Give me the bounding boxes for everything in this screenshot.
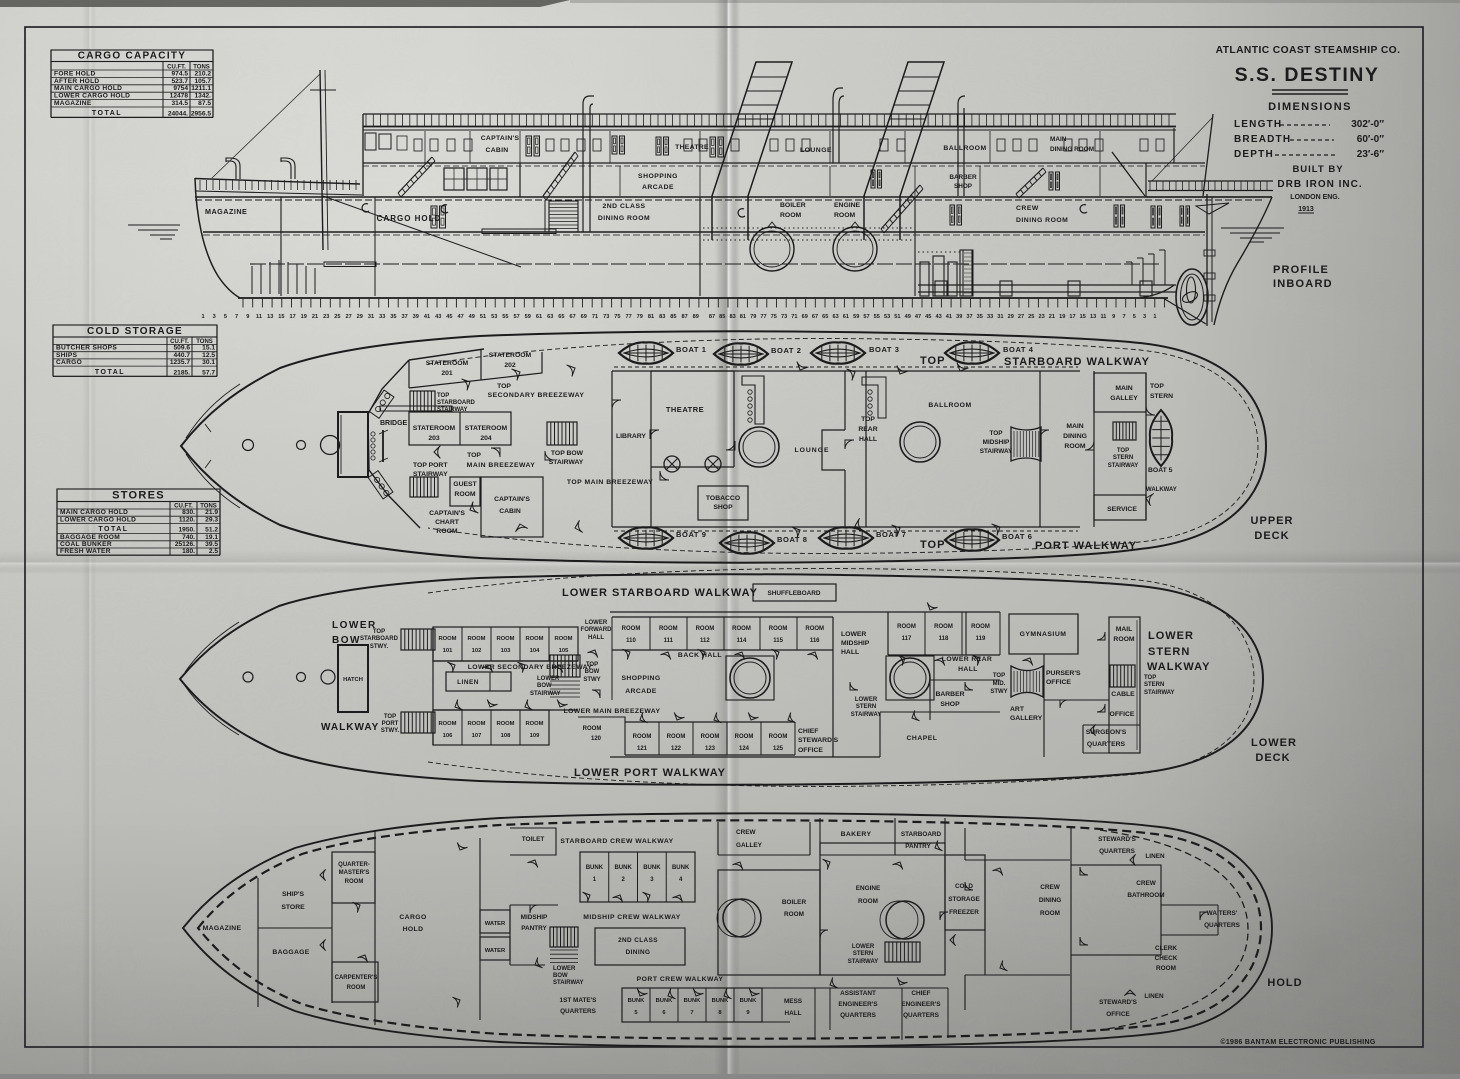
svg-text:1235.7: 1235.7	[170, 359, 191, 366]
svg-text:DINING: DINING	[1063, 433, 1087, 440]
svg-text:15: 15	[278, 314, 284, 320]
svg-text:OFFICE: OFFICE	[1046, 679, 1071, 686]
svg-text:2.5: 2.5	[209, 548, 218, 555]
svg-text:121: 121	[637, 746, 648, 752]
svg-text:LOWER: LOWER	[1251, 737, 1297, 749]
svg-text:43: 43	[435, 314, 441, 320]
svg-text:75: 75	[771, 314, 777, 320]
svg-text:TOP: TOP	[384, 714, 396, 720]
svg-text:89: 89	[693, 314, 699, 320]
svg-text:LOWER: LOWER	[553, 966, 576, 972]
svg-text:ROOM: ROOM	[496, 721, 514, 727]
svg-text:LOWER: LOWER	[855, 697, 878, 703]
svg-text:87: 87	[709, 314, 715, 320]
svg-text:ROOM: ROOM	[667, 734, 686, 740]
svg-text:STAIRWAY: STAIRWAY	[413, 471, 448, 478]
svg-text:102: 102	[472, 648, 482, 654]
svg-text:MAIN CARGO HOLD: MAIN CARGO HOLD	[54, 85, 122, 92]
svg-text:CREW: CREW	[1016, 205, 1039, 212]
svg-text:47: 47	[915, 314, 921, 320]
svg-text:WATER: WATER	[485, 921, 506, 927]
svg-text:31: 31	[997, 314, 1003, 320]
svg-text:MAIN: MAIN	[1050, 136, 1067, 143]
svg-text:LINEN: LINEN	[457, 679, 479, 686]
svg-text:COLD STORAGE: COLD STORAGE	[87, 326, 183, 337]
svg-text:61: 61	[536, 314, 542, 320]
svg-text:123: 123	[705, 746, 716, 752]
svg-text:25: 25	[1028, 314, 1034, 320]
svg-text:30.1: 30.1	[202, 359, 215, 366]
svg-text:1120.: 1120.	[179, 516, 195, 523]
svg-text:15: 15	[1080, 314, 1086, 320]
svg-text:STERN: STERN	[856, 704, 876, 710]
svg-text:ROOM: ROOM	[1064, 443, 1085, 450]
svg-text:25: 25	[334, 314, 340, 320]
svg-text:ROOM: ROOM	[834, 212, 855, 219]
svg-text:WALKWAY: WALKWAY	[1147, 661, 1210, 673]
svg-text:CAPTAIN'S: CAPTAIN'S	[481, 135, 520, 142]
svg-text:WATER: WATER	[485, 948, 506, 954]
svg-text:CARGO CAPACITY: CARGO CAPACITY	[78, 51, 187, 62]
svg-text:GUEST: GUEST	[453, 481, 477, 488]
svg-text:2ND CLASS: 2ND CLASS	[618, 937, 658, 944]
svg-text:TOP PORT: TOP PORT	[413, 462, 448, 469]
svg-text:MAIL: MAIL	[1116, 626, 1133, 633]
svg-text:BUNK: BUNK	[614, 865, 632, 871]
svg-text:LOWER MAIN BREEZEWAY: LOWER MAIN BREEZEWAY	[564, 708, 661, 715]
svg-text:ENGINE: ENGINE	[834, 202, 861, 209]
svg-text:CHART: CHART	[435, 519, 460, 526]
svg-text:53: 53	[491, 314, 497, 320]
svg-text:ROOM: ROOM	[784, 911, 804, 918]
svg-text:27: 27	[1018, 314, 1024, 320]
svg-text:7: 7	[235, 314, 238, 320]
svg-text:STERN: STERN	[1148, 646, 1190, 658]
svg-text:ROOM: ROOM	[345, 879, 364, 885]
svg-text:BOAT 3: BOAT 3	[869, 345, 900, 354]
svg-text:49: 49	[469, 314, 475, 320]
svg-text:STARBOARD: STARBOARD	[360, 636, 399, 642]
svg-text:ROOM: ROOM	[525, 636, 543, 642]
svg-text:GALLEY: GALLEY	[736, 842, 763, 849]
svg-text:BOILER: BOILER	[780, 202, 806, 209]
svg-text:974.5: 974.5	[171, 70, 188, 77]
svg-text:67: 67	[569, 314, 575, 320]
svg-text:ROOM: ROOM	[438, 636, 456, 642]
svg-text:DIMENSIONS: DIMENSIONS	[1268, 101, 1352, 113]
svg-text:AFTER HOLD: AFTER HOLD	[54, 78, 100, 85]
svg-text:ROOM: ROOM	[1113, 636, 1134, 643]
svg-text:CHIEF: CHIEF	[798, 728, 818, 735]
svg-text:ROOM: ROOM	[496, 636, 514, 642]
svg-text:STERN: STERN	[1113, 455, 1133, 461]
svg-text:HALL: HALL	[784, 1010, 801, 1017]
svg-text:STORES: STORES	[112, 490, 165, 502]
svg-text:9: 9	[246, 314, 249, 320]
svg-text:ROOM: ROOM	[735, 734, 754, 740]
svg-text:204: 204	[480, 435, 492, 442]
svg-text:LOWER PORT WALKWAY: LOWER PORT WALKWAY	[574, 767, 726, 779]
svg-text:STORAGE: STORAGE	[948, 896, 980, 903]
svg-text:MAIN BREEZEWAY: MAIN BREEZEWAY	[467, 462, 536, 469]
svg-text:STAIRWAY: STAIRWAY	[1144, 690, 1175, 696]
svg-text:ROOM: ROOM	[769, 734, 788, 740]
svg-text:SERVICE: SERVICE	[1107, 506, 1137, 513]
svg-text:LOWER: LOWER	[332, 620, 377, 631]
svg-text:TOP MAIN BREEZEWAY: TOP MAIN BREEZEWAY	[567, 479, 653, 486]
svg-text:105: 105	[559, 648, 569, 654]
svg-text:QUARTER-: QUARTER-	[338, 862, 370, 868]
svg-text:15.1: 15.1	[202, 345, 215, 352]
svg-text:314.5: 314.5	[171, 100, 188, 107]
svg-text:1342.: 1342.	[194, 93, 211, 100]
svg-text:19.1: 19.1	[205, 534, 218, 541]
svg-text:LOUNGE: LOUNGE	[794, 447, 829, 454]
svg-text:STERN: STERN	[853, 951, 873, 957]
svg-text:BOW: BOW	[585, 669, 600, 675]
svg-text:ROOM: ROOM	[454, 491, 475, 498]
svg-text:13: 13	[267, 314, 273, 320]
svg-text:TOP: TOP	[861, 416, 875, 423]
svg-text:TOP: TOP	[437, 393, 449, 399]
svg-text:GYMNASIUM: GYMNASIUM	[1020, 631, 1067, 638]
svg-text:29.3: 29.3	[205, 516, 218, 523]
svg-text:25126.: 25126.	[175, 541, 195, 548]
svg-text:122: 122	[671, 746, 682, 752]
svg-text:PANTRY: PANTRY	[905, 843, 931, 850]
svg-text:1913: 1913	[1298, 206, 1314, 213]
svg-text:61: 61	[843, 314, 849, 320]
svg-text:SHIPS: SHIPS	[56, 352, 78, 359]
svg-text:TOP: TOP	[586, 662, 598, 668]
svg-text:57: 57	[863, 314, 869, 320]
svg-text:BALLROOM: BALLROOM	[943, 145, 986, 152]
svg-text:TOP BOW: TOP BOW	[551, 450, 584, 457]
svg-text:LOUNGE: LOUNGE	[800, 147, 832, 154]
svg-text:60′-0″: 60′-0″	[1357, 134, 1384, 145]
svg-text:HALL: HALL	[859, 436, 877, 443]
svg-text:CREW: CREW	[736, 829, 756, 836]
svg-text:55: 55	[502, 314, 508, 320]
svg-text:5: 5	[224, 314, 227, 320]
svg-text:39.5: 39.5	[205, 541, 218, 548]
svg-text:29: 29	[1008, 314, 1014, 320]
svg-text:740.: 740.	[182, 534, 195, 541]
svg-text:DINING: DINING	[626, 949, 651, 956]
svg-text:TOTAL: TOTAL	[92, 110, 122, 117]
svg-text:201: 201	[441, 370, 453, 377]
svg-text:ROOM: ROOM	[858, 898, 878, 905]
svg-text:MIDSHIP CREW WALKWAY: MIDSHIP CREW WALKWAY	[583, 914, 681, 921]
svg-text:120: 120	[591, 736, 602, 742]
svg-text:BALLROOM: BALLROOM	[928, 402, 971, 409]
svg-text:24044.: 24044.	[168, 110, 188, 117]
svg-text:45: 45	[925, 314, 931, 320]
svg-text:ROOM: ROOM	[436, 528, 457, 535]
svg-text:117: 117	[902, 636, 912, 642]
svg-text:111: 111	[664, 638, 674, 644]
svg-text:17: 17	[1069, 314, 1075, 320]
svg-text:BOW: BOW	[553, 973, 568, 979]
svg-text:MIDSHIP: MIDSHIP	[521, 914, 548, 921]
svg-text:33: 33	[987, 314, 993, 320]
svg-text:19: 19	[1059, 314, 1065, 320]
svg-text:7: 7	[690, 1010, 693, 1016]
svg-text:FORWARD: FORWARD	[581, 627, 613, 633]
svg-text:TOTAL: TOTAL	[98, 526, 128, 533]
svg-text:STAIRWAY: STAIRWAY	[1108, 463, 1139, 469]
svg-text:MIDSHIP: MIDSHIP	[983, 439, 1010, 446]
svg-text:SHUFFLEBOARD: SHUFFLEBOARD	[768, 590, 821, 597]
svg-text:SHOPPING: SHOPPING	[621, 675, 660, 682]
svg-text:QUARTERS: QUARTERS	[1099, 848, 1136, 855]
svg-text:BAKERY: BAKERY	[841, 831, 872, 838]
svg-text:23′-6″: 23′-6″	[1357, 149, 1384, 160]
svg-text:87.5: 87.5	[198, 100, 211, 107]
svg-text:MAGAZINE: MAGAZINE	[203, 925, 242, 932]
svg-text:9: 9	[1112, 314, 1115, 320]
svg-text:TOP: TOP	[920, 355, 945, 367]
svg-text:TOTAL: TOTAL	[95, 369, 125, 376]
svg-text:180.: 180.	[182, 548, 195, 555]
svg-text:ROOM: ROOM	[525, 721, 543, 727]
svg-text:1211.1: 1211.1	[191, 85, 211, 92]
svg-text:STERN: STERN	[1144, 682, 1164, 688]
svg-text:CHIEF: CHIEF	[911, 990, 930, 997]
svg-text:BOW: BOW	[537, 683, 552, 689]
svg-text:81: 81	[740, 314, 746, 320]
svg-text:19: 19	[301, 314, 307, 320]
svg-text:STEWARD'S: STEWARD'S	[1099, 999, 1137, 1006]
svg-text:TOP: TOP	[1144, 675, 1156, 681]
svg-text:23: 23	[323, 314, 329, 320]
svg-text:5: 5	[1133, 314, 1136, 320]
svg-text:ARCADE: ARCADE	[642, 184, 674, 191]
svg-text:BUNK: BUNK	[586, 865, 604, 871]
svg-text:509.6: 509.6	[173, 345, 190, 352]
svg-text:PORT: PORT	[382, 721, 399, 727]
svg-text:MAIN: MAIN	[1066, 423, 1083, 430]
svg-text:ASSISTANT: ASSISTANT	[840, 990, 876, 997]
svg-text:87: 87	[681, 314, 687, 320]
svg-text:67: 67	[812, 314, 818, 320]
svg-text:STAIRWAY: STAIRWAY	[848, 959, 879, 965]
svg-text:STWY: STWY	[990, 689, 1007, 695]
svg-text:CARGO: CARGO	[399, 914, 426, 921]
svg-text:SHOP: SHOP	[713, 504, 733, 511]
svg-text:ART: ART	[1010, 706, 1025, 713]
svg-text:ROOM: ROOM	[701, 734, 720, 740]
svg-text:210.2: 210.2	[194, 70, 211, 77]
svg-text:51: 51	[480, 314, 486, 320]
svg-text:112: 112	[700, 638, 710, 644]
svg-text:STARBOARD: STARBOARD	[437, 400, 476, 406]
svg-text:BOAT 6: BOAT 6	[1002, 532, 1033, 541]
svg-text:21.9: 21.9	[205, 509, 218, 516]
svg-text:9754: 9754	[173, 85, 188, 92]
svg-text:DRB IRON INC.: DRB IRON INC.	[1277, 179, 1362, 190]
svg-text:71: 71	[592, 314, 598, 320]
svg-text:LOWER CARGO HOLD: LOWER CARGO HOLD	[60, 516, 136, 523]
svg-text:PURSER'S: PURSER'S	[1046, 670, 1081, 677]
svg-text:ROOM: ROOM	[732, 626, 751, 632]
svg-text:TOP: TOP	[989, 430, 1003, 437]
svg-text:77: 77	[760, 314, 766, 320]
svg-text:ROOM: ROOM	[1040, 910, 1060, 917]
svg-text:STAIRWAY: STAIRWAY	[530, 691, 561, 697]
svg-text:57.7: 57.7	[202, 369, 215, 376]
svg-text:37: 37	[401, 314, 407, 320]
svg-text:39: 39	[956, 314, 962, 320]
svg-text:TOP: TOP	[467, 452, 481, 459]
svg-text:CAPTAIN'S: CAPTAIN'S	[494, 496, 530, 503]
svg-text:LOWER: LOWER	[852, 944, 875, 950]
svg-text:BRIDGE: BRIDGE	[380, 420, 408, 427]
svg-text:ROOM: ROOM	[347, 985, 366, 991]
svg-text:TOP: TOP	[920, 539, 945, 551]
svg-text:QUARTERS: QUARTERS	[560, 1008, 597, 1015]
svg-text:ROOM: ROOM	[805, 626, 824, 632]
svg-text:3: 3	[1143, 314, 1146, 320]
svg-text:STARBOARD WALKWAY: STARBOARD WALKWAY	[1004, 356, 1150, 368]
svg-text:BARBER: BARBER	[949, 174, 977, 181]
svg-text:THEATRE: THEATRE	[675, 144, 709, 151]
svg-text:TOP: TOP	[497, 383, 511, 390]
svg-text:DEPTH: DEPTH	[1234, 149, 1274, 160]
svg-text:523.7: 523.7	[171, 78, 188, 85]
svg-text:106: 106	[443, 733, 453, 739]
svg-text:TOBACCO: TOBACCO	[706, 495, 740, 502]
svg-text:118: 118	[939, 636, 949, 642]
svg-text:WAITERS': WAITERS'	[1207, 910, 1238, 917]
svg-text:BUNK: BUNK	[643, 865, 661, 871]
svg-text:12478: 12478	[170, 93, 189, 100]
svg-text:103: 103	[501, 648, 511, 654]
svg-text:53: 53	[884, 314, 890, 320]
svg-text:51: 51	[894, 314, 900, 320]
svg-text:MASTER'S: MASTER'S	[339, 870, 370, 876]
svg-text:TOP: TOP	[1117, 448, 1129, 454]
svg-text:QUARTERS: QUARTERS	[1087, 741, 1126, 748]
svg-text:49: 49	[905, 314, 911, 320]
svg-text:ROOM: ROOM	[467, 636, 485, 642]
svg-text:COLD: COLD	[955, 883, 973, 890]
svg-text:QUARTERS: QUARTERS	[840, 1012, 877, 1019]
svg-text:CARPENTER'S: CARPENTER'S	[335, 975, 378, 981]
svg-text:83: 83	[729, 314, 735, 320]
svg-text:ENGINEER'S: ENGINEER'S	[838, 1001, 878, 1008]
svg-text:114: 114	[737, 638, 747, 644]
svg-text:LOWER STARBOARD WALKWAY: LOWER STARBOARD WALKWAY	[562, 587, 758, 599]
svg-text:71: 71	[791, 314, 797, 320]
svg-text:MAGAZINE: MAGAZINE	[54, 100, 92, 107]
svg-text:HOLD: HOLD	[403, 926, 424, 933]
svg-text:ROOM: ROOM	[554, 636, 572, 642]
svg-text:BOAT 2: BOAT 2	[771, 346, 802, 355]
svg-text:51.2: 51.2	[205, 527, 218, 534]
svg-text:LOWER CARGO HOLD: LOWER CARGO HOLD	[54, 93, 130, 100]
svg-text:31: 31	[368, 314, 374, 320]
svg-text:DINING ROOM: DINING ROOM	[598, 215, 650, 222]
svg-text:1: 1	[1153, 314, 1156, 320]
svg-text:MAIN CARGO HOLD: MAIN CARGO HOLD	[60, 509, 128, 516]
svg-text:63: 63	[547, 314, 553, 320]
svg-text:BAGGAGE ROOM: BAGGAGE ROOM	[60, 534, 120, 541]
svg-text:MID.: MID.	[993, 681, 1006, 687]
svg-text:41: 41	[946, 314, 952, 320]
svg-text:BACK HALL: BACK HALL	[678, 652, 722, 659]
svg-text:21: 21	[312, 314, 318, 320]
svg-text:45: 45	[446, 314, 452, 320]
svg-text:CREW: CREW	[1040, 884, 1060, 891]
svg-text:ENGINE: ENGINE	[856, 885, 881, 892]
svg-text:SHIP'S: SHIP'S	[282, 891, 304, 898]
svg-text:QUARTERS: QUARTERS	[1204, 922, 1241, 929]
svg-text:HALL: HALL	[588, 635, 604, 641]
svg-text:2185.: 2185.	[173, 369, 190, 376]
svg-text:ROOM: ROOM	[622, 626, 641, 632]
svg-text:ARCADE: ARCADE	[625, 688, 657, 695]
svg-text:ROOM: ROOM	[696, 626, 715, 632]
svg-text:STATEROOM: STATEROOM	[489, 352, 532, 359]
svg-text:302′-0″: 302′-0″	[1351, 119, 1384, 130]
svg-text:CABIN: CABIN	[485, 147, 508, 154]
svg-text:440.7: 440.7	[173, 352, 190, 359]
svg-text:STORE: STORE	[281, 904, 305, 911]
svg-text:119: 119	[976, 636, 986, 642]
svg-text:LIBRARY: LIBRARY	[616, 433, 646, 440]
svg-text:63: 63	[832, 314, 838, 320]
svg-text:HALL: HALL	[841, 649, 859, 656]
svg-text:ROOM: ROOM	[438, 721, 456, 727]
svg-text:202: 202	[504, 362, 516, 369]
svg-text:BUNK: BUNK	[656, 998, 674, 1004]
svg-text:830.: 830.	[182, 509, 195, 516]
svg-text:PORT CREW WALKWAY: PORT CREW WALKWAY	[637, 976, 724, 983]
svg-text:LINEN: LINEN	[1145, 853, 1165, 860]
svg-text:17: 17	[289, 314, 295, 320]
svg-text:DINING ROOM: DINING ROOM	[1016, 217, 1068, 224]
svg-text:SHOP: SHOP	[954, 183, 973, 190]
svg-text:1950.: 1950.	[178, 527, 195, 534]
svg-text:BATHROOM: BATHROOM	[1127, 892, 1164, 899]
svg-text:GALLERY: GALLERY	[1010, 715, 1043, 722]
svg-text:57: 57	[513, 314, 519, 320]
svg-text:TOILET: TOILET	[522, 836, 545, 843]
svg-text:81: 81	[648, 314, 654, 320]
svg-text:TOP: TOP	[993, 673, 1005, 679]
svg-text:CREW: CREW	[1136, 880, 1156, 887]
svg-text:BOAT 5: BOAT 5	[1148, 467, 1173, 474]
svg-text:DECK: DECK	[1254, 530, 1289, 542]
svg-text:UPPER: UPPER	[1251, 515, 1294, 527]
svg-text:85: 85	[719, 314, 725, 320]
svg-text:LINEN: LINEN	[1144, 993, 1164, 1000]
svg-text:REAR: REAR	[858, 426, 877, 433]
svg-text:55: 55	[874, 314, 880, 320]
svg-text:2956.5: 2956.5	[191, 110, 212, 117]
svg-text:TOP: TOP	[1150, 383, 1164, 390]
svg-text:ROOM: ROOM	[659, 626, 678, 632]
svg-text:OFFICE: OFFICE	[1110, 711, 1135, 718]
svg-text:STWY.: STWY.	[370, 644, 389, 650]
svg-text:STAIRWAY: STAIRWAY	[553, 980, 584, 986]
svg-text:108: 108	[501, 733, 511, 739]
svg-text:S.S. DESTINY: S.S. DESTINY	[1235, 64, 1380, 86]
svg-text:BREADTH: BREADTH	[1234, 134, 1291, 145]
svg-text:DINING ROOM: DINING ROOM	[1050, 146, 1094, 153]
svg-text:MAGAZINE: MAGAZINE	[205, 207, 247, 216]
